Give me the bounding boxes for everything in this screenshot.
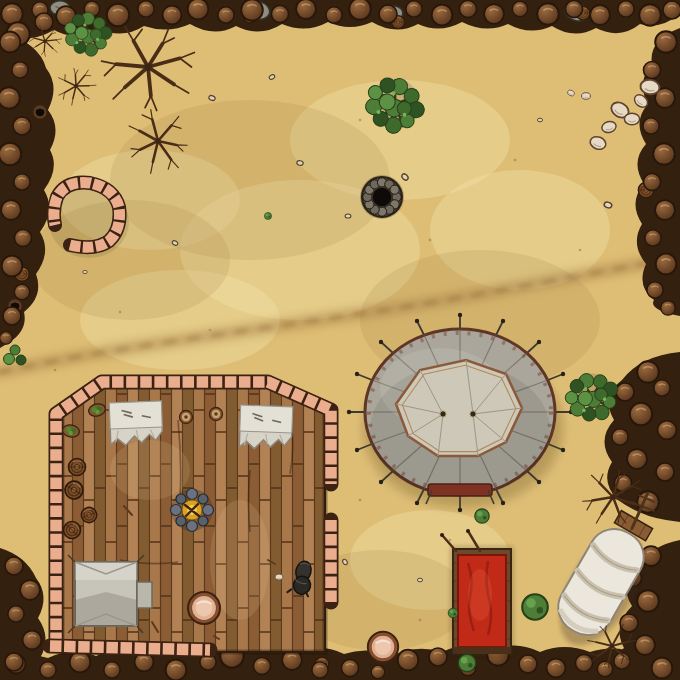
- rock-boulder: [655, 200, 675, 220]
- white-stone: [275, 574, 283, 580]
- rock-boulder: [271, 5, 288, 22]
- tent-side-crate[interactable]: [137, 582, 152, 608]
- rock-boulder: [656, 254, 677, 275]
- pavilion-tent[interactable]: [347, 313, 573, 512]
- pebble: [417, 578, 422, 582]
- rock-boulder: [590, 5, 610, 25]
- rock-boulder: [296, 0, 316, 19]
- rock-boulder: [643, 173, 660, 190]
- bush-tree[interactable]: [522, 594, 548, 620]
- rock-boulder: [637, 361, 659, 383]
- rock-boulder: [639, 4, 661, 26]
- rock-boulder: [547, 659, 566, 678]
- rock-boulder: [654, 380, 670, 396]
- rock-boulder: [2, 256, 23, 277]
- rock-boulder: [341, 659, 358, 676]
- rock-boulder: [371, 665, 385, 679]
- rock-boulder: [627, 449, 647, 469]
- rock-boulder: [519, 655, 537, 673]
- rock-boulder: [379, 5, 397, 23]
- white-boulder: [624, 113, 639, 124]
- rock-boulder: [620, 614, 638, 632]
- clay-pot[interactable]: [368, 632, 398, 662]
- rock-boulder: [537, 3, 559, 25]
- rock-boulder: [0, 143, 21, 166]
- rock-boulder: [14, 284, 29, 299]
- rock-boulder: [429, 648, 447, 666]
- rock-boulder: [20, 580, 40, 600]
- rock-boulder: [512, 1, 527, 16]
- rock-boulder: [616, 383, 634, 401]
- rock-boulder: [163, 6, 182, 25]
- rock-boulder: [663, 1, 680, 19]
- rock-boulder: [312, 662, 328, 678]
- rock-boulder: [5, 653, 23, 671]
- rock-boulder: [630, 403, 653, 426]
- rock-boulder: [652, 658, 673, 679]
- rock-boulder: [40, 662, 56, 678]
- clay-pot[interactable]: [188, 592, 220, 624]
- rock-boulder: [5, 557, 23, 575]
- battle-map-canvas[interactable]: [0, 0, 680, 680]
- rock-boulder: [23, 631, 42, 650]
- rock-boulder: [612, 429, 628, 445]
- rock-boulder: [643, 61, 660, 78]
- pebble: [296, 160, 303, 166]
- rock-boulder: [398, 650, 419, 671]
- rock-boulder: [107, 4, 130, 27]
- rock-boulder: [661, 301, 675, 315]
- small-weed: [264, 212, 271, 219]
- rock-boulder: [8, 606, 24, 622]
- pebble: [537, 118, 542, 122]
- tent-entrance[interactable]: [428, 484, 492, 496]
- rock-boulder: [326, 7, 342, 23]
- small-bush[interactable]: [448, 608, 458, 618]
- white-boulder: [582, 93, 591, 100]
- rock-boulder: [188, 0, 209, 19]
- small-bush[interactable]: [458, 654, 476, 672]
- rock-boulder: [643, 118, 659, 134]
- bowl[interactable]: [180, 411, 193, 424]
- red-tent[interactable]: [440, 529, 514, 656]
- rock-boulder: [1, 200, 21, 220]
- pebble: [345, 214, 351, 218]
- rock-boulder: [655, 31, 677, 53]
- rock-boulder: [653, 143, 675, 165]
- rock-boulder: [484, 4, 504, 24]
- rock-boulder: [406, 1, 422, 17]
- rock-boulder: [0, 32, 20, 53]
- rock-boulder: [218, 7, 234, 23]
- rock-boulder: [0, 87, 20, 109]
- rock-boulder: [459, 0, 476, 17]
- rock-boulder: [0, 332, 12, 345]
- bowl[interactable]: [210, 408, 223, 421]
- rock-boulder: [575, 654, 592, 671]
- rock-boulder: [14, 229, 31, 246]
- pebble: [83, 270, 87, 273]
- rock-boulder: [104, 662, 120, 678]
- rock-boulder: [166, 660, 187, 680]
- rock-boulder: [618, 1, 634, 17]
- rock-boulder: [70, 652, 91, 673]
- rock-boulder: [432, 5, 453, 26]
- stone-pen[interactable]: [49, 183, 129, 258]
- rock-boulder: [13, 117, 31, 135]
- rock-hole: [35, 107, 46, 118]
- rock-boulder: [3, 307, 21, 325]
- stone-well[interactable]: [360, 175, 404, 219]
- rock-boulder: [35, 13, 53, 31]
- rock-boulder: [253, 657, 270, 674]
- rock-boulder: [349, 0, 371, 20]
- rock-boulder: [565, 0, 582, 17]
- rock-boulder: [645, 230, 661, 246]
- rock-boulder: [637, 590, 659, 612]
- barrel[interactable]: [69, 459, 86, 476]
- brick-wall-bottom: [50, 646, 210, 650]
- rock-boulder: [656, 463, 674, 481]
- rock-boulder: [635, 635, 655, 655]
- rock-boulder: [647, 282, 663, 298]
- rock-boulder: [138, 1, 154, 17]
- small-bush[interactable]: [475, 509, 489, 523]
- rock-boulder: [241, 0, 263, 21]
- rock-boulder: [12, 62, 28, 78]
- rock-boulder: [658, 421, 677, 440]
- rock-boulder: [14, 174, 30, 190]
